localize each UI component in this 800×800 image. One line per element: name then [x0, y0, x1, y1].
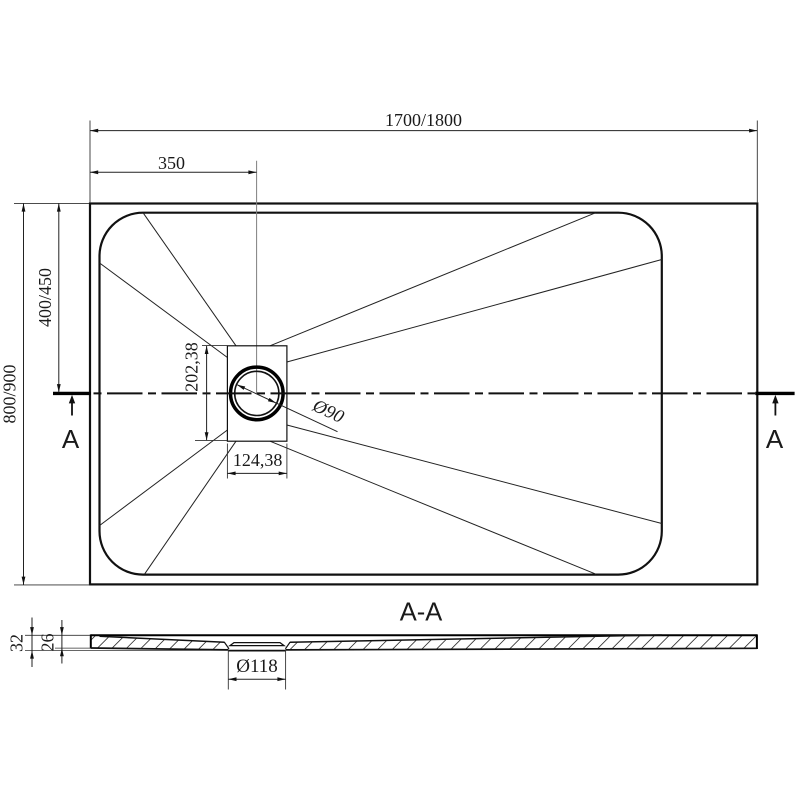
svg-text:A: A [62, 424, 80, 454]
svg-text:26: 26 [38, 634, 58, 652]
svg-text:1700/1800: 1700/1800 [385, 110, 462, 130]
svg-text:Ø118: Ø118 [236, 656, 278, 677]
svg-text:400/450: 400/450 [35, 268, 55, 327]
svg-text:A-A: A-A [400, 599, 443, 627]
svg-text:350: 350 [158, 153, 185, 173]
svg-text:32: 32 [7, 634, 27, 652]
svg-text:A: A [766, 424, 784, 454]
svg-text:800/900: 800/900 [0, 364, 20, 423]
svg-text:202,38: 202,38 [182, 342, 202, 392]
svg-text:124,38: 124,38 [233, 450, 283, 470]
